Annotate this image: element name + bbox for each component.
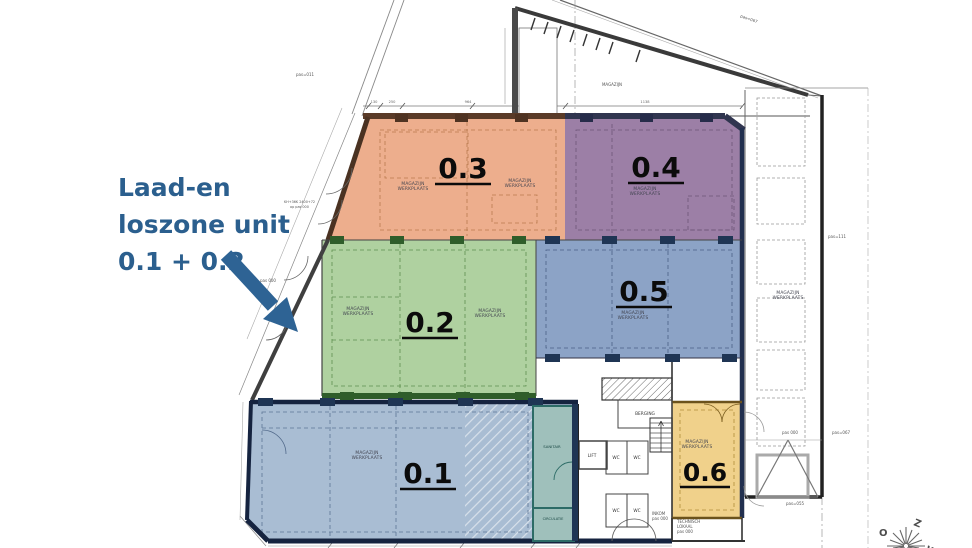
sanitair-room [533,406,574,508]
callout: Laad-en loszone unit 0.1 + 0.2 [118,173,298,332]
zone-0-2-bottom-wall [322,393,536,399]
wc-label: WC [612,508,619,514]
wc-label: WC [612,455,619,461]
dimension-text: 130 [371,100,379,104]
room-label: WERKPLAATS [618,315,649,321]
zone-0-3-label: 0.3 [438,152,488,185]
annex-left-wall [512,8,518,116]
room-label: WERKPLAATS [475,313,506,319]
top-annex: MAGAZIJN [512,8,810,116]
dimension-text: 964 [465,100,473,104]
pas-label: pas=055 [786,501,805,506]
room-label: WERKPLAATS [398,186,429,192]
right-strip: MAGAZIJN WERKPLAATS [745,88,868,548]
pas-label: pas=011 [296,72,315,77]
room-label: WERKPLAATS [505,183,536,189]
callout-line-1: Laad-en [118,173,231,202]
zone-0-2-label: 0.2 [405,306,455,339]
ramp-triangle [745,440,822,497]
room-label: WERKPLAATS [630,191,661,197]
compass-icon: Z O W [879,518,938,548]
compass-o: O [879,528,888,539]
pas-label: pas=067 [740,13,759,24]
inkom-pas-label: pas 000 [652,516,668,521]
compass-z: Z [912,518,923,531]
berging-label: BERGING [635,411,655,417]
kh-note: KH+36K 2400+72 [284,200,315,204]
callout-line-2: loszone unit [118,210,290,239]
annex-room-label: MAGAZIJN [602,82,622,87]
callout-arrow-icon [226,255,298,332]
compass-w: W [924,545,938,548]
zone-0-4-label: 0.4 [631,151,681,184]
stairs-lower [650,418,672,452]
sanitair-label: SANITAIR [543,444,561,449]
lift-label: LIFT [588,453,597,459]
technisch-pas-label: pas 000 [677,529,693,534]
circulatie-room [533,508,574,541]
stairs-upper [602,378,672,400]
strip-room-label-2: WERKPLAATS [773,295,804,301]
zone-0-5-label: 0.5 [619,275,669,308]
wc-label: WC [633,508,640,514]
zone-0-1-hatched-bay [465,402,533,542]
pas-label: pas 000 [260,278,276,283]
dimension-text: 1138 [640,100,650,104]
kh-note: op pas 000 [290,205,309,209]
room-label: WERKPLAATS [343,311,374,317]
wc-label: WC [633,455,640,461]
strip-dashed-bays [757,98,805,446]
zone-0-1-label: 0.1 [403,457,453,490]
circulatie-label: CIRCULATIE [543,517,565,521]
zone-0-6-label: 0.6 [683,458,727,487]
floor-plan-drawing: MAGAZIJN MAGAZIJN WERKPLAATS [0,0,972,548]
pas-label: pas=067 [832,430,851,435]
room-label: WERKPLAATS [352,455,383,461]
pas-label: pas 000 [782,430,798,435]
room-label: WERKPLAATS [682,444,713,450]
dimension-text: 250 [389,100,397,104]
pas-label: pas=111 [828,234,847,239]
floor-plan-screenshot: MAGAZIJN MAGAZIJN WERKPLAATS [0,0,972,548]
